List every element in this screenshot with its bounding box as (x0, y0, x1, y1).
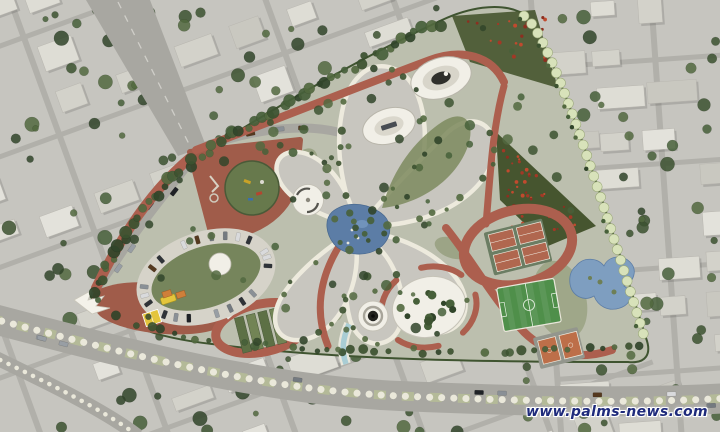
tree (271, 243, 279, 251)
tree (154, 393, 161, 400)
tree (283, 94, 295, 106)
tree (501, 349, 509, 357)
tree (586, 343, 595, 352)
tree (385, 79, 391, 85)
tree (338, 144, 344, 150)
car (593, 393, 602, 397)
flower (518, 158, 520, 160)
tree (413, 298, 420, 305)
tree (146, 198, 153, 205)
tree (397, 420, 411, 432)
tree (100, 261, 109, 270)
tree (558, 14, 567, 23)
tree (352, 224, 359, 231)
tree (578, 140, 588, 150)
tree (601, 219, 605, 223)
flower (508, 20, 510, 22)
tree (619, 266, 629, 276)
tree (98, 230, 113, 245)
tree (625, 287, 635, 297)
tree (315, 329, 322, 336)
tree (118, 100, 125, 107)
tree (281, 304, 290, 313)
tree (95, 297, 101, 303)
flower (541, 16, 544, 19)
tree (612, 344, 618, 350)
tree (707, 54, 717, 64)
tree (667, 140, 678, 151)
tree (341, 67, 348, 74)
tree (324, 180, 330, 186)
tree (133, 322, 139, 328)
tree (381, 196, 387, 202)
tree (416, 215, 423, 222)
tree (262, 148, 269, 155)
tree (527, 19, 537, 29)
tree (583, 30, 597, 44)
tree (313, 260, 318, 265)
flower (476, 22, 479, 25)
tree (640, 297, 653, 310)
tree (398, 290, 403, 295)
flower (526, 194, 529, 197)
tree (111, 311, 121, 321)
tree (600, 346, 605, 351)
tree (542, 346, 548, 352)
tree (509, 48, 515, 54)
tree (288, 280, 292, 284)
tree (444, 98, 454, 108)
tree (686, 63, 697, 74)
tree (528, 145, 538, 155)
flower (508, 189, 510, 191)
tree (268, 127, 278, 137)
tree (456, 194, 463, 201)
flower (525, 168, 529, 172)
tree (626, 351, 635, 360)
tree (589, 171, 599, 181)
flower (540, 194, 543, 197)
tree (370, 65, 378, 73)
tree (318, 61, 332, 75)
tree (231, 68, 245, 82)
tree (383, 221, 392, 230)
tree (98, 276, 108, 286)
aerial-render: www.palms-news.com (0, 0, 720, 432)
tree (154, 191, 165, 202)
parking-island-plaza (209, 253, 231, 275)
tree (304, 83, 315, 94)
flower (535, 174, 538, 177)
tree (412, 165, 417, 170)
tree (281, 292, 287, 298)
flower (553, 228, 556, 231)
tree (367, 94, 377, 104)
tree (159, 156, 169, 166)
tree (157, 274, 165, 282)
tree (241, 339, 247, 345)
building (706, 249, 720, 271)
tree (66, 63, 76, 73)
tree (379, 183, 389, 193)
tree (368, 206, 377, 215)
tree (625, 343, 632, 350)
flower (467, 20, 470, 23)
tree (267, 119, 274, 126)
tree (52, 263, 63, 274)
tree (573, 135, 577, 139)
tree (414, 87, 419, 92)
tree (263, 341, 268, 346)
tree (359, 271, 368, 280)
car (187, 314, 191, 322)
tree (291, 38, 304, 51)
tree (211, 270, 221, 280)
tree (552, 172, 562, 182)
flower (557, 228, 559, 230)
tree (70, 209, 77, 216)
tree (702, 124, 711, 133)
tree (240, 277, 246, 283)
tree (174, 168, 183, 177)
tree (357, 59, 368, 70)
tree (233, 126, 244, 137)
tree (335, 347, 341, 353)
tree (376, 48, 389, 61)
tree (410, 345, 417, 352)
tree (634, 324, 638, 328)
play-equipment (248, 198, 253, 201)
tree (340, 99, 346, 105)
tree (322, 191, 330, 199)
tree (395, 205, 399, 209)
tree (262, 30, 270, 38)
tree (168, 154, 176, 162)
flower (528, 175, 530, 177)
tree (331, 215, 338, 222)
tree (199, 154, 206, 161)
tree (404, 194, 410, 200)
tree (119, 226, 132, 239)
tree (206, 338, 211, 343)
tree (601, 420, 608, 427)
tree (562, 104, 566, 108)
tree (351, 219, 357, 225)
tree (428, 291, 437, 300)
tree (491, 162, 496, 167)
tree (323, 99, 333, 109)
tree (619, 173, 628, 182)
tree (393, 271, 400, 278)
tree (618, 112, 628, 122)
tree (381, 230, 387, 236)
tree (288, 26, 294, 32)
tree (698, 98, 711, 111)
tree (290, 196, 297, 203)
tree (373, 31, 381, 39)
tree (178, 19, 190, 31)
fountain-plaza (358, 301, 388, 331)
tree (209, 111, 218, 120)
tree (346, 209, 353, 216)
tree (216, 86, 223, 93)
tree (549, 130, 558, 139)
tree (156, 324, 165, 333)
tree (546, 63, 550, 67)
tree (271, 86, 280, 95)
tree (329, 281, 336, 288)
tree (639, 216, 646, 223)
tree (358, 344, 368, 354)
tree (464, 298, 469, 303)
tree (336, 161, 341, 166)
tree (290, 343, 297, 350)
tree (244, 51, 255, 62)
tree (32, 125, 38, 131)
aerial-map (0, 0, 720, 432)
tree (253, 338, 261, 346)
flower (520, 171, 523, 174)
tree (196, 8, 206, 18)
flower (502, 149, 505, 152)
tree (590, 91, 601, 102)
tree (660, 157, 674, 171)
flower (523, 180, 527, 184)
flower (506, 156, 509, 159)
tree (190, 226, 196, 232)
flower (513, 24, 517, 28)
tree (360, 52, 367, 59)
tree (692, 202, 704, 214)
tree (130, 235, 139, 244)
tree (598, 102, 604, 108)
tree (346, 345, 355, 354)
tree (324, 347, 329, 352)
tree (559, 88, 569, 98)
tree (429, 209, 436, 216)
tree (317, 25, 327, 35)
tree (397, 304, 405, 312)
tree (481, 348, 489, 356)
tree (366, 238, 371, 243)
flower (511, 191, 514, 194)
tree (513, 102, 522, 111)
tree (329, 322, 334, 327)
flower (528, 173, 530, 175)
tree (537, 44, 541, 48)
tree (582, 150, 592, 160)
tree (662, 267, 674, 279)
flower (519, 43, 523, 47)
tree (441, 301, 446, 306)
watermark: www.palms-news.com (526, 404, 708, 420)
building (702, 211, 720, 236)
tree (592, 182, 602, 192)
flower (525, 191, 527, 193)
tree (447, 348, 453, 354)
tree (570, 125, 574, 129)
play-dome (260, 180, 264, 184)
flower (543, 58, 547, 62)
tree (249, 76, 260, 87)
tree (181, 335, 186, 340)
flower (498, 40, 502, 44)
tree (692, 333, 703, 344)
flower (521, 215, 524, 218)
tree (533, 28, 543, 38)
tree (334, 72, 340, 78)
tree (434, 331, 440, 337)
tree (43, 16, 49, 22)
tree (89, 118, 100, 129)
tree (576, 10, 590, 24)
tree (433, 5, 439, 11)
tree (400, 73, 407, 80)
tree (27, 156, 34, 163)
tree (543, 48, 553, 58)
tree (315, 348, 320, 353)
tree (711, 237, 718, 244)
tree (11, 134, 21, 144)
tree (596, 364, 607, 375)
tree (612, 245, 622, 255)
tree (338, 127, 346, 135)
tree (419, 350, 427, 358)
tree (79, 66, 88, 75)
tree (567, 207, 574, 214)
car (223, 232, 227, 240)
flower (512, 55, 516, 59)
tree (116, 396, 125, 405)
building (590, 1, 615, 17)
tree (345, 246, 354, 255)
tree (629, 297, 639, 307)
tree (341, 416, 351, 426)
tree (299, 336, 307, 344)
tree (479, 175, 486, 182)
tree (119, 132, 125, 138)
tree (219, 156, 229, 166)
tree (100, 193, 112, 205)
tree (502, 134, 513, 145)
tree (138, 204, 146, 212)
flower (506, 195, 509, 198)
tree (389, 67, 395, 73)
flower (516, 186, 518, 188)
tree (362, 336, 368, 342)
tree (289, 148, 298, 157)
flower (518, 160, 521, 163)
tree (551, 68, 561, 78)
flower (511, 162, 513, 164)
tree (599, 203, 609, 213)
flower (563, 206, 565, 208)
tree (176, 177, 182, 183)
car (474, 390, 483, 395)
tree (480, 25, 486, 31)
tree (422, 151, 427, 156)
tree (314, 105, 323, 114)
tree (638, 208, 646, 216)
tree (438, 308, 447, 317)
tree (285, 356, 291, 362)
tree (372, 288, 377, 293)
tree (206, 150, 214, 158)
building (647, 79, 698, 103)
tree (207, 232, 215, 240)
tree (405, 313, 411, 319)
tree (531, 347, 537, 353)
tree (375, 342, 380, 347)
tree (584, 167, 588, 171)
building (637, 0, 662, 24)
tree (436, 349, 442, 355)
tree (246, 125, 253, 132)
flower (497, 23, 499, 25)
tree (343, 327, 349, 333)
tree (329, 155, 334, 160)
tree (89, 287, 100, 298)
tree (172, 331, 177, 336)
tree (426, 199, 430, 203)
tree (415, 21, 427, 33)
tree (609, 234, 619, 244)
tree (616, 255, 626, 265)
tree (299, 125, 308, 134)
tree (392, 236, 399, 243)
tree (518, 93, 525, 100)
tree (145, 314, 151, 320)
tree (309, 152, 313, 156)
tree (186, 237, 193, 244)
tree (424, 317, 433, 326)
building (596, 167, 639, 189)
tree (648, 152, 657, 161)
tree (518, 17, 522, 21)
car (264, 264, 273, 269)
tree (327, 73, 335, 81)
tree (133, 215, 140, 222)
tree (638, 329, 648, 339)
football-pitch (497, 278, 562, 331)
tree (415, 164, 423, 172)
tree (206, 140, 216, 150)
tree (577, 108, 590, 121)
tree (446, 152, 453, 159)
flower (530, 198, 533, 201)
tree (72, 19, 81, 28)
building (706, 289, 720, 317)
building (714, 332, 720, 352)
tree (367, 217, 374, 224)
flower (543, 193, 545, 195)
tree (465, 120, 475, 130)
tree (343, 297, 349, 303)
tree (349, 292, 357, 300)
tree (345, 143, 351, 149)
seating-plaza (293, 185, 324, 216)
tree (554, 84, 558, 88)
car (498, 391, 507, 396)
tree (2, 221, 16, 235)
tree (391, 186, 395, 190)
building (700, 163, 720, 185)
flower (507, 169, 510, 172)
flower (515, 42, 518, 45)
tree (253, 411, 259, 417)
tree (52, 11, 59, 18)
tree (466, 141, 473, 148)
